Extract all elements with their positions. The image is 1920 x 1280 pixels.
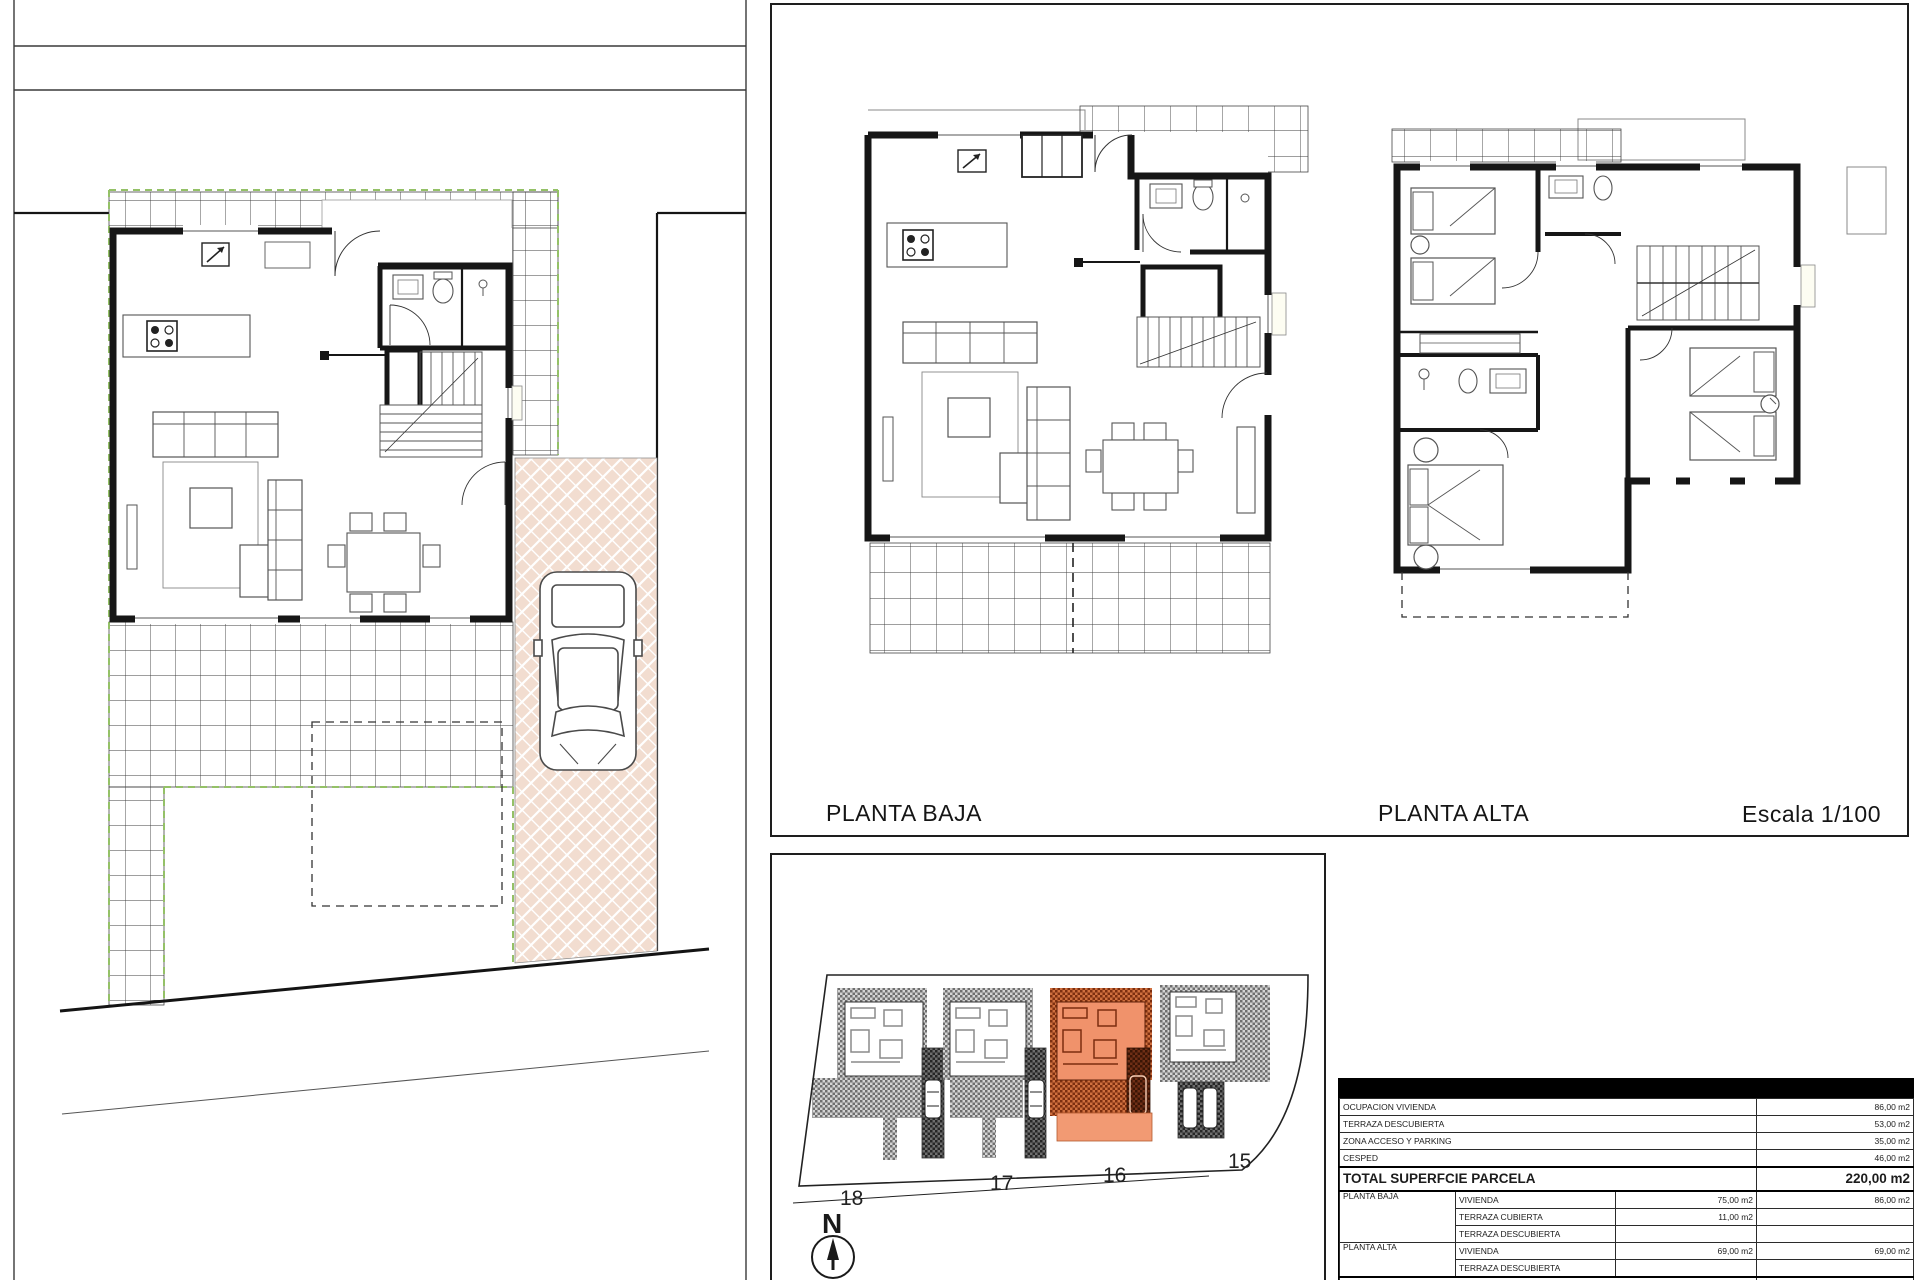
partial-cell xyxy=(1616,1226,1757,1243)
fireplace-icon xyxy=(958,150,986,172)
areas-table: OCUPACION VIVIENDA 86,00 m2 TERRAZA DESC… xyxy=(1338,1078,1914,1280)
stove-icon xyxy=(147,321,177,351)
concept-cell: VIVIENDA xyxy=(1456,1191,1616,1209)
row-label: TERRAZA DESCUBIERTA xyxy=(1340,1116,1757,1133)
lot-number-16: 16 xyxy=(1103,1164,1126,1187)
row-label: CESPED xyxy=(1340,1150,1757,1168)
lot-15 xyxy=(1160,985,1270,1138)
row-value: 46,00 m2 xyxy=(1757,1150,1914,1168)
partial-cell: 69,00 m2 xyxy=(1616,1243,1757,1260)
table-row: PLANTA BAJA VIVIENDA 75,00 m2 86,00 m2 xyxy=(1340,1191,1914,1209)
concept-cell: VIVIENDA xyxy=(1456,1243,1616,1260)
partial-cell: 11,00 m2 xyxy=(1616,1209,1757,1226)
north-label: N xyxy=(822,1208,842,1239)
lot-16-highlighted xyxy=(1050,988,1152,1141)
site-layout-drawing: 18 17 16 15 N xyxy=(770,853,1326,1280)
lot-number-17: 17 xyxy=(990,1172,1013,1195)
row-value: 86,00 m2 xyxy=(1757,1099,1914,1116)
bathroom xyxy=(1549,176,1612,200)
planta-baja-label: PLANTA BAJA xyxy=(826,800,982,827)
table-row: OCUPACION VIVIENDA 86,00 m2 xyxy=(1340,1099,1914,1116)
row-label: OCUPACION VIVIENDA xyxy=(1340,1099,1757,1116)
table-header-bar xyxy=(1339,1079,1913,1098)
table-row: ZONA ACCESO Y PARKING 35,00 m2 xyxy=(1340,1133,1914,1150)
floor-cell: PLANTA ALTA xyxy=(1340,1243,1456,1278)
total-cell: 69,00 m2 xyxy=(1757,1243,1914,1260)
architectural-plan-sheet: PLANTA BAJA PLANTA ALTA Escala 1/100 xyxy=(0,0,1920,1280)
stove-icon xyxy=(903,230,933,260)
upper-floor-plan xyxy=(1392,119,1886,617)
ground-floor-plan xyxy=(868,106,1308,653)
table-row: CESPED 46,00 m2 xyxy=(1340,1150,1914,1168)
kitchen-island xyxy=(123,315,250,357)
total-cell: 86,00 m2 xyxy=(1757,1191,1914,1209)
car-icon xyxy=(534,572,642,770)
house-footprint-plan xyxy=(110,225,522,624)
total-cell xyxy=(1757,1226,1914,1243)
concept-cell: TERRAZA DESCUBIERTA xyxy=(1456,1226,1616,1243)
site-plan-drawing xyxy=(0,0,760,1280)
row-value: 35,00 m2 xyxy=(1757,1133,1914,1150)
north-compass-icon: N xyxy=(812,1208,854,1278)
concept-cell: TERRAZA CUBIERTA xyxy=(1456,1209,1616,1226)
concept-cell: TERRAZA DESCUBIERTA xyxy=(1456,1260,1616,1278)
lot-18 xyxy=(812,988,944,1160)
floor-plans-drawing xyxy=(770,0,1910,837)
planta-alta-label: PLANTA ALTA xyxy=(1378,800,1529,827)
lot-number-18: 18 xyxy=(840,1187,863,1210)
total-parcela-row: TOTAL SUPERFCIE PARCELA 220,00 m2 xyxy=(1340,1167,1914,1191)
floor-cell: PLANTA BAJA xyxy=(1340,1191,1456,1243)
lot-number-15: 15 xyxy=(1228,1150,1251,1173)
table-row: PLANTA ALTA VIVIENDA 69,00 m2 69,00 m2 xyxy=(1340,1243,1914,1260)
fireplace-icon xyxy=(202,243,229,266)
partial-cell xyxy=(1616,1260,1757,1278)
total-cell xyxy=(1757,1209,1914,1226)
table-row: TERRAZA DESCUBIERTA 53,00 m2 xyxy=(1340,1116,1914,1133)
total-cell xyxy=(1757,1260,1914,1278)
row-value: 53,00 m2 xyxy=(1757,1116,1914,1133)
row-label: ZONA ACCESO Y PARKING xyxy=(1340,1133,1757,1150)
lot-17 xyxy=(943,988,1046,1158)
partial-cell: 75,00 m2 xyxy=(1616,1191,1757,1209)
row-value: 220,00 m2 xyxy=(1757,1167,1914,1191)
scale-label: Escala 1/100 xyxy=(1742,801,1881,828)
row-label: TOTAL SUPERFCIE PARCELA xyxy=(1340,1167,1757,1191)
